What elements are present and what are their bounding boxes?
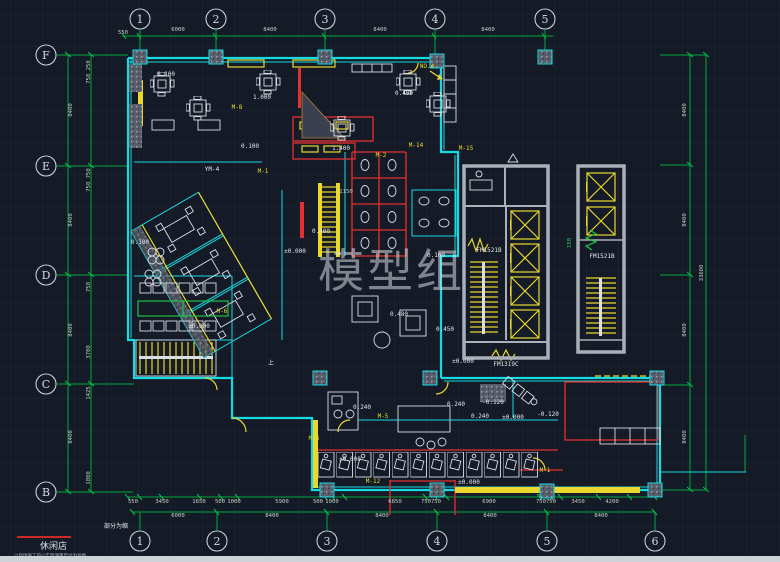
structural-columns	[133, 50, 664, 498]
plan-label: M-14	[409, 142, 424, 149]
column	[133, 50, 147, 64]
dim-text: 1150	[339, 189, 352, 195]
dim-text: 8400	[68, 430, 74, 443]
dim-text: 8400	[483, 513, 496, 519]
grid-bubble-3: 3	[317, 531, 337, 551]
dim-text: 4200	[605, 499, 618, 505]
elevator-core-left	[464, 154, 548, 358]
dim-text: 550	[128, 499, 138, 505]
dim-text: 750	[421, 499, 431, 505]
dim-text: 1000	[86, 471, 92, 484]
grid-bubble-1: 1	[130, 9, 150, 29]
dim-text: 750	[546, 499, 556, 505]
bubble-label: 2	[213, 13, 220, 26]
plan-label: ±0.000	[284, 248, 306, 255]
column	[540, 484, 554, 498]
dim-text: 8400	[263, 27, 276, 33]
dim-text: 750	[536, 499, 546, 505]
diagonal-room-wing	[131, 192, 272, 357]
plan-label: M-6	[217, 308, 228, 315]
bubble-label: F	[42, 49, 50, 62]
dim-text: 33600	[699, 265, 705, 282]
grid-bubble-4: 4	[425, 9, 445, 29]
plan-label: 0.100	[157, 71, 175, 78]
dim-text: 6000	[171, 513, 184, 519]
plan-label: ±0.000	[188, 323, 210, 330]
plan-label: 0.450	[436, 326, 454, 333]
dim-text: 1000	[227, 499, 240, 505]
dim-text: 6000	[171, 27, 184, 33]
column	[538, 50, 552, 64]
dim-text: 8400	[375, 513, 388, 519]
bubble-label: 3	[322, 13, 329, 26]
plan-label: M-6	[309, 435, 320, 442]
cad-model-space: 12345123456FEDCB 55060008400840084008400…	[0, 0, 780, 562]
bubble-label: E	[42, 160, 50, 173]
grid-bubble-4: 4	[427, 531, 447, 551]
grid-bubble-C: C	[36, 374, 56, 394]
column	[423, 371, 437, 385]
dim-text: 8400	[68, 323, 74, 336]
bubble-label: 4	[432, 13, 439, 26]
plan-label: ±0.000	[502, 414, 524, 421]
floor-plan-drawing: 12345123456FEDCB 55060008400840084008400…	[0, 0, 780, 562]
dim-text: 8400	[373, 27, 386, 33]
column	[318, 50, 332, 64]
dim-text: 8400	[682, 430, 688, 443]
dim-text: 8400	[265, 513, 278, 519]
dim-text: 750	[431, 499, 441, 505]
bench-dining-room	[138, 283, 228, 331]
plan-label: 0.480	[390, 311, 408, 318]
dim-text: 8400	[682, 213, 688, 226]
plan-label: 1.000	[253, 94, 271, 101]
bubble-label: 3	[324, 535, 331, 548]
grid-bubble-E: E	[36, 156, 56, 176]
bubble-label: 6	[652, 535, 659, 548]
grid-bubble-3: 3	[315, 9, 335, 29]
plan-label: FM1521B	[476, 247, 502, 254]
plan-label: 0.240	[353, 404, 371, 411]
window-bottom-edge	[0, 556, 780, 562]
plan-label: 上	[268, 359, 274, 367]
dim-text: 750 250	[86, 60, 92, 84]
dim-text: 550	[118, 30, 128, 36]
plan-label: 0.400	[395, 90, 413, 97]
dim-text: 3450	[155, 499, 168, 505]
bubble-label: 5	[542, 13, 549, 26]
plan-label: 0.100	[427, 252, 445, 259]
bubble-label: 5	[544, 535, 551, 548]
dim-text: 3700	[86, 345, 92, 358]
plan-label: -0.120	[537, 411, 559, 418]
grid-bubble-2: 2	[206, 9, 226, 29]
grid-bubble-D: D	[36, 265, 56, 285]
booth-seat	[411, 452, 427, 477]
plan-label: M-1	[540, 467, 551, 474]
column	[650, 371, 664, 385]
booth-seat	[503, 452, 519, 477]
booth-seat	[429, 452, 445, 477]
plan-label: 0.100	[241, 143, 259, 150]
plan-label: M-2	[376, 152, 387, 159]
booth-seat	[374, 452, 390, 477]
dim-text: 1000	[325, 499, 338, 505]
booth-seat	[466, 452, 482, 477]
bubble-label: 1	[137, 13, 144, 26]
column	[430, 483, 444, 497]
grid-bubble-F: F	[36, 45, 56, 65]
column	[209, 50, 223, 64]
plan-label: FM1521B	[589, 253, 615, 260]
grid-bubble-6: 6	[645, 531, 665, 551]
plan-label: M-5	[378, 413, 389, 420]
plan-label: FM1319C	[493, 361, 519, 368]
booth-seat	[448, 452, 464, 477]
plan-label: M-15	[459, 145, 474, 152]
dim-text: 8400	[682, 103, 688, 116]
dim-text: 3450	[571, 499, 584, 505]
dim-text: 6900	[482, 499, 495, 505]
bubble-label: D	[42, 269, 51, 282]
plan-label: 0.240	[471, 413, 489, 420]
dim-text: 5900	[275, 499, 288, 505]
plan-label: -0.120	[482, 399, 504, 406]
booth-seat	[485, 452, 501, 477]
plan-label: M-1	[258, 168, 269, 175]
plan-label: 0.240	[447, 401, 465, 408]
dim-text: 150	[567, 238, 573, 248]
dim-text: 8400	[68, 213, 74, 226]
plan-label: 部分为缩	[104, 522, 128, 530]
dim-text: 500	[313, 499, 323, 505]
dim-text: 8400	[594, 513, 607, 519]
column	[313, 371, 327, 385]
dim-text: 8400	[68, 103, 74, 116]
booth-seat	[522, 452, 538, 477]
plan-label: NO.4	[420, 63, 435, 70]
plan-label: ±0.000	[339, 456, 361, 463]
plan-label: 1.400	[332, 145, 350, 152]
plan-label: 0.100	[131, 239, 149, 246]
dim-text: 750 750	[86, 168, 92, 192]
dim-text: 500	[215, 499, 225, 505]
plan-label: ±0.000	[452, 358, 474, 365]
plan-label: YM-4	[205, 166, 220, 173]
bubble-label: B	[42, 486, 50, 499]
grid-bubble-5: 5	[537, 531, 557, 551]
dim-text: 1425	[86, 386, 92, 399]
plan-label: ±0.000	[458, 479, 480, 486]
grid-bubble-5: 5	[535, 9, 555, 29]
title-underline	[17, 536, 71, 538]
booth-seat	[318, 452, 334, 477]
exterior-walls	[128, 58, 746, 490]
drawing-title: 休闲店	[40, 539, 232, 552]
dim-text: 8400	[682, 323, 688, 336]
dim-text: 8400	[481, 27, 494, 33]
booth-seat	[392, 452, 408, 477]
dim-text: 750	[86, 282, 92, 292]
bubble-label: 4	[434, 535, 441, 548]
plan-label: M-8	[232, 104, 243, 111]
plan-label: 0.400	[312, 228, 330, 235]
dim-text: 6850	[388, 499, 401, 505]
plan-label: M-12	[366, 478, 381, 485]
grid-bubble-B: B	[36, 482, 56, 502]
column	[320, 483, 334, 497]
column	[648, 483, 662, 497]
bubble-label: C	[42, 378, 50, 391]
dim-text: 1650	[192, 499, 205, 505]
